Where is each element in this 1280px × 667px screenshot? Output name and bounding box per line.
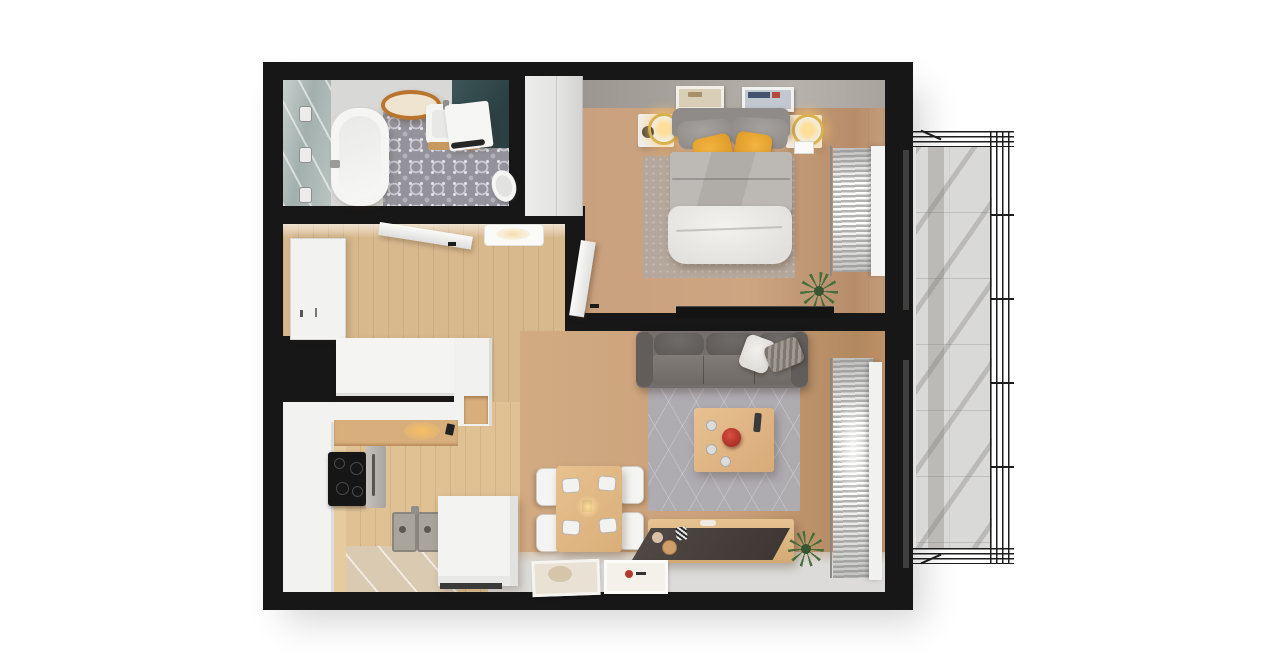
picture-frame-left-art xyxy=(688,92,702,97)
entry-door xyxy=(290,238,346,340)
wall-top xyxy=(263,62,913,80)
bathtub-faucet xyxy=(330,160,340,168)
picture-frame-left xyxy=(676,86,724,110)
kitchen-counter-left xyxy=(283,402,334,592)
bedroom-door-handle xyxy=(590,304,599,308)
shower-handle-3 xyxy=(299,187,312,203)
bathtub-inner xyxy=(339,116,381,198)
coffee-table-bowl xyxy=(722,428,741,447)
bedroom-curtain-panel xyxy=(871,146,885,276)
bed-duvet xyxy=(668,206,792,264)
tv-decor-striped-cup xyxy=(675,526,688,540)
bedroom-curtain-rail xyxy=(830,146,832,276)
place-setting-1 xyxy=(561,477,580,493)
picture-frame-right-art-red xyxy=(772,92,780,98)
balcony-post-1 xyxy=(990,214,1014,216)
living-curtain-panel xyxy=(869,362,882,580)
cooktop-burner-4 xyxy=(352,486,363,497)
sink-drain-left xyxy=(399,526,406,533)
place-setting-4 xyxy=(598,517,617,534)
entry-door-lock xyxy=(315,308,317,317)
bed-blanket-fold xyxy=(672,178,790,180)
window-slot-living xyxy=(903,360,909,568)
balcony-post-3 xyxy=(990,382,1014,384)
doormat-art-right xyxy=(604,560,668,594)
shower-handle-2 xyxy=(299,147,312,163)
kitchen-peninsula xyxy=(438,496,518,586)
tv-decor-bowl xyxy=(652,532,663,543)
balcony-shade-streak xyxy=(928,146,944,548)
shower-handle-1 xyxy=(299,106,312,122)
oven-front xyxy=(366,446,386,508)
coffee-table-cup-2 xyxy=(706,444,717,455)
bedroom-wardrobe xyxy=(525,76,583,216)
bedroom-wall-strip xyxy=(583,80,885,108)
balcony-post-2 xyxy=(990,298,1014,300)
kitchen-counter-top-arm xyxy=(283,402,460,422)
place-setting-3 xyxy=(561,519,580,535)
living-curtain-bright xyxy=(835,400,871,496)
dining-pendant-glow xyxy=(576,496,600,518)
bedroom-tv xyxy=(676,306,834,318)
nightstand-right-notepad xyxy=(794,141,814,154)
bed-blanket xyxy=(670,152,792,212)
picture-frame-right-art-blue xyxy=(748,92,770,98)
bedroom-wardrobe-divider-line xyxy=(556,76,557,216)
doormat-art-right-dash xyxy=(636,572,646,575)
sofa-seat-split-1 xyxy=(703,356,704,384)
cooktop-burner-3 xyxy=(336,482,349,495)
doormat-art-left-blob xyxy=(548,566,572,582)
cooktop-burner-1 xyxy=(334,458,345,469)
balcony-post-4 xyxy=(990,466,1014,468)
coffee-table-cup-3 xyxy=(720,456,731,467)
hall-wardrobe-nook xyxy=(464,396,488,424)
balcony-railing-right xyxy=(990,131,1014,564)
sofa-back-cushion-1 xyxy=(654,333,704,356)
kitchen-peninsula-gap xyxy=(440,583,502,589)
sink-drain-right xyxy=(424,526,431,533)
oven-handle xyxy=(372,454,375,496)
kitchen-faucet xyxy=(411,506,419,514)
place-setting-2 xyxy=(597,475,616,492)
bedroom-curtain xyxy=(833,148,873,272)
coffee-table-cup-1 xyxy=(706,420,717,431)
cooktop-burner-2 xyxy=(350,462,363,475)
curtain-shading xyxy=(833,148,873,272)
tv-decor-bowl-2 xyxy=(662,540,677,555)
tv-decor-dish xyxy=(700,520,716,526)
bathroom-door-handle xyxy=(448,242,456,246)
living-curtain-rail xyxy=(830,358,832,578)
entry-door-handle xyxy=(300,310,303,317)
kitchen-under-cabinet-glow xyxy=(404,422,440,440)
sofa-armrest-left xyxy=(636,332,653,387)
hall-ceiling-light-glow xyxy=(496,228,530,240)
window-slot-bedroom xyxy=(903,150,909,310)
floor-plan-stage xyxy=(0,0,1280,667)
doormat-art-right-red xyxy=(625,570,633,578)
